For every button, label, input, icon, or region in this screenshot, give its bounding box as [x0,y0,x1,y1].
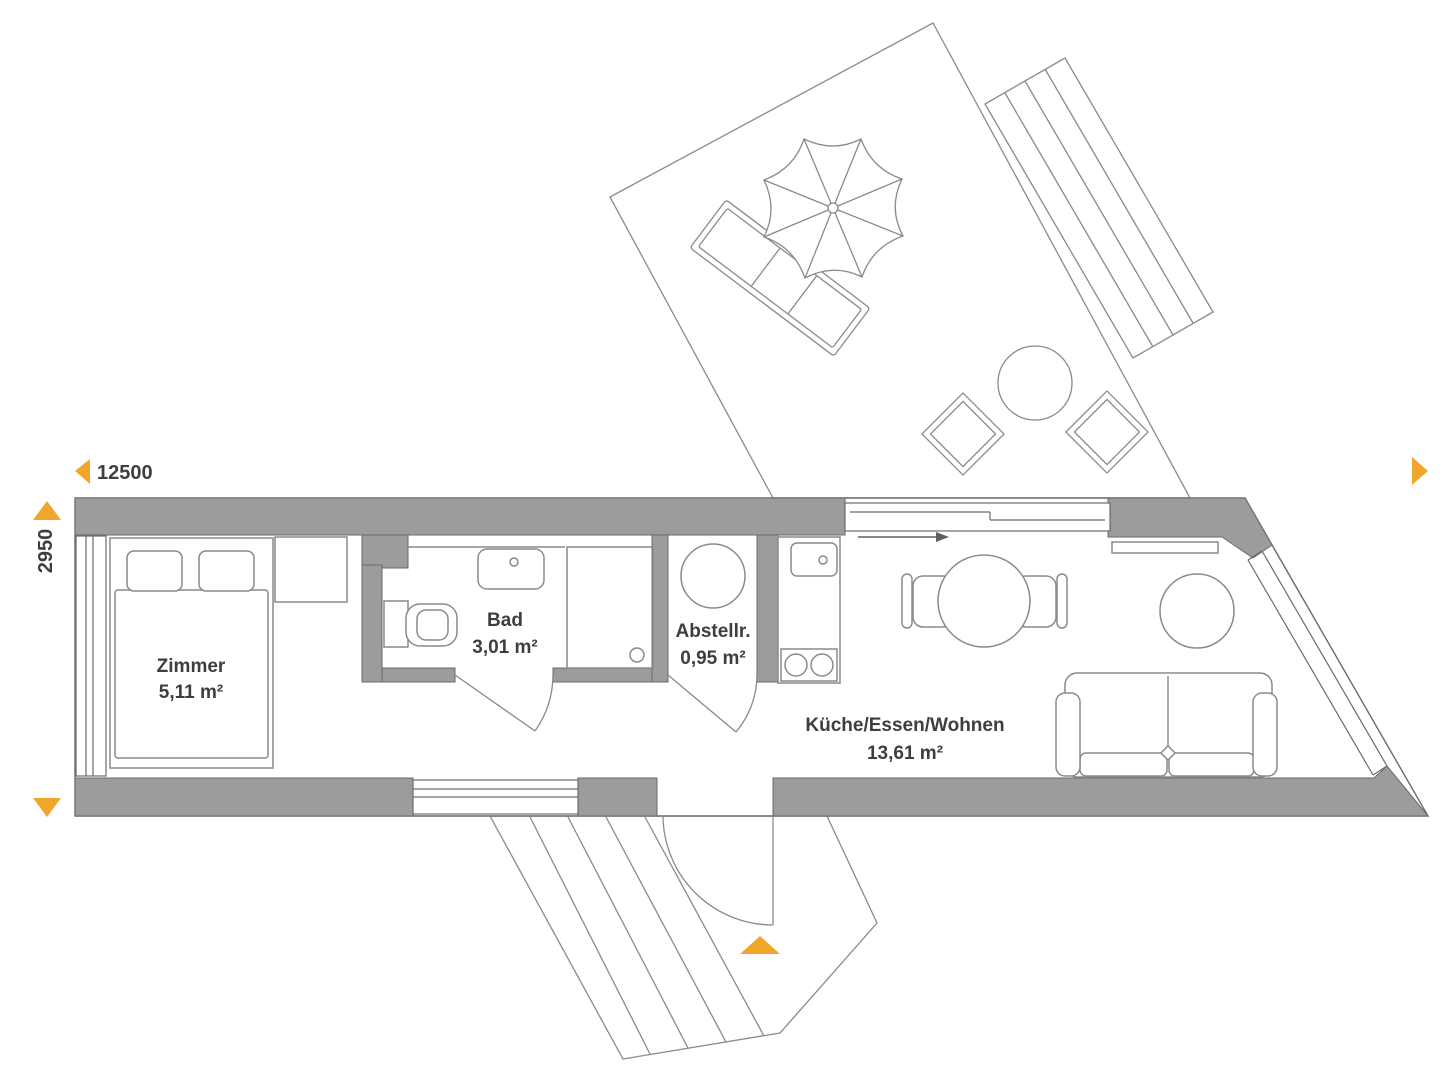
wall-partition-storage-kitchen [757,535,778,682]
wall-bottom-left [75,778,413,816]
window-left [76,536,106,776]
wall-bath-bottom-right [553,668,652,682]
umbrella-pole [828,203,838,213]
terrace-table [998,346,1072,420]
wall-partition-bedroom-bath [362,565,382,682]
window-bottom [413,780,578,814]
floor-plan-drawing: Zimmer 5,11 m² Bad 3,01 m² Abstellr. 0,9… [0,0,1450,1080]
bed [110,538,273,768]
dimension-width-label: 12500 [97,462,153,484]
nightstand [275,537,347,602]
cooktop [781,649,837,681]
sofa-armrest [1253,693,1277,776]
wall-partition-bedroom-bath-upper [362,535,408,568]
pillow [199,551,254,591]
dimension-width: 12500 [75,459,153,484]
sliding-door [845,503,1110,531]
pillow [127,551,182,591]
room-label-zimmer: Zimmer [157,656,226,677]
right-arrow-icon [1412,457,1428,485]
sofa-seat [1080,753,1167,776]
down-arrow-icon [33,798,61,817]
terrace [610,23,1213,498]
floor-plan-canvas: Zimmer 5,11 m² Bad 3,01 m² Abstellr. 0,9… [0,0,1450,1080]
sofa-armrest [1056,693,1080,776]
dining-table [938,555,1030,647]
wall-bottom-mid [578,778,657,816]
room-label-abstellraum: Abstellr. [676,621,751,642]
room-area-abstellraum: 0,95 m² [680,648,745,669]
left-arrow-icon [75,459,90,484]
room-area-wohnen: 13,61 m² [867,743,943,764]
sofa-seat [1169,753,1254,776]
room-label-wohnen: Küche/Essen/Wohnen [805,715,1004,736]
washbasin [478,549,544,589]
kitchen-sink [791,543,837,576]
wall-top [75,498,845,535]
toilet [384,601,457,647]
dimension-height-label: 2950 [35,529,57,574]
dining-chair-back [902,574,912,628]
dimension-height: 2950 [33,501,61,817]
sofa [1056,673,1277,777]
room-area-zimmer: 5,11 m² [159,682,223,703]
room-area-bad: 3,01 m² [472,637,537,658]
wall-bath-bottom-left [382,668,455,682]
room-label-bad: Bad [487,610,523,631]
wall-partition-shower-storage [652,535,668,682]
up-arrow-icon [33,501,61,520]
entrance-porch [490,816,877,1059]
dining-chair-back [1057,574,1067,628]
